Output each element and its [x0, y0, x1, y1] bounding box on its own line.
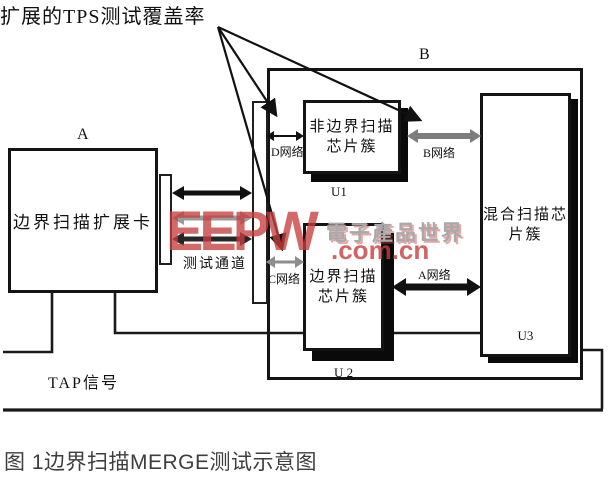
diagram-canvas: 扩展的TPS测试覆盖率 A 边界扫描扩展卡 B 非边界扫描 芯片簇 U1 边界扫…: [0, 0, 608, 440]
tap-signal-label: TAP信号: [48, 369, 119, 393]
test-channel-label: 测试通道: [183, 253, 247, 273]
tps-coverage-label: 扩展的TPS测试覆盖率: [0, 0, 608, 29]
chip-u3-name-line2: 片簇: [508, 225, 542, 245]
edge-connector-a: [159, 174, 172, 265]
figure-caption: 图 1边界扫描MERGE测试示意图: [4, 446, 317, 476]
chip-u2-ref: U 2: [334, 365, 353, 381]
board-a: 边界扫描扩展卡: [8, 148, 158, 293]
chip-u3-ref: U3: [483, 328, 568, 344]
arrow-head-right: [296, 131, 304, 141]
arrow-shaft: [178, 237, 246, 242]
net-a-label: A网络: [418, 266, 451, 283]
net-c-label: C网络: [268, 270, 300, 287]
arrow-shaft: [178, 216, 246, 221]
arrow-shaft: [398, 284, 475, 291]
arrow-head-right: [240, 232, 252, 246]
arrow-shaft: [413, 133, 475, 139]
board-b-label: B: [419, 46, 430, 64]
arrow-head-right: [240, 211, 252, 225]
test-channel-arrow-1: [172, 186, 252, 200]
test-channel-arrow-3: [172, 232, 252, 246]
chip-u2: 边界扫描 芯片簇: [303, 223, 384, 351]
board-a-name: 边界扫描扩展卡: [13, 208, 153, 233]
test-channel-arrow-2: [172, 211, 252, 225]
chip-u2-name-line1: 边界扫描: [309, 267, 377, 287]
net-d-label: D网络: [271, 143, 304, 160]
net-b-arrow: [407, 128, 481, 143]
chip-u3: 混合扫描芯 片簇 U3: [480, 93, 571, 357]
chip-u1: 非边界扫描 芯片簇: [303, 100, 401, 174]
board-a-label: A: [77, 126, 89, 144]
chip-u1-ref: U1: [331, 184, 347, 200]
arrow-shaft: [178, 191, 246, 196]
arrow-shaft: [272, 135, 298, 137]
arrow-head-right: [295, 256, 304, 268]
net-d-arrow: [266, 131, 304, 141]
arrow-head-right: [470, 129, 481, 143]
chip-u3-name-line1: 混合扫描芯: [483, 205, 568, 225]
chip-u1-name-line2: 芯片簇: [326, 137, 377, 157]
arrow-head-right: [467, 278, 481, 296]
arrow-head-right: [240, 186, 252, 200]
chip-u2-name-line2: 芯片簇: [318, 287, 369, 307]
net-c-arrow: [266, 256, 304, 268]
net-b-label: B网络: [423, 144, 455, 161]
chip-u1-name-line1: 非边界扫描: [309, 117, 394, 137]
